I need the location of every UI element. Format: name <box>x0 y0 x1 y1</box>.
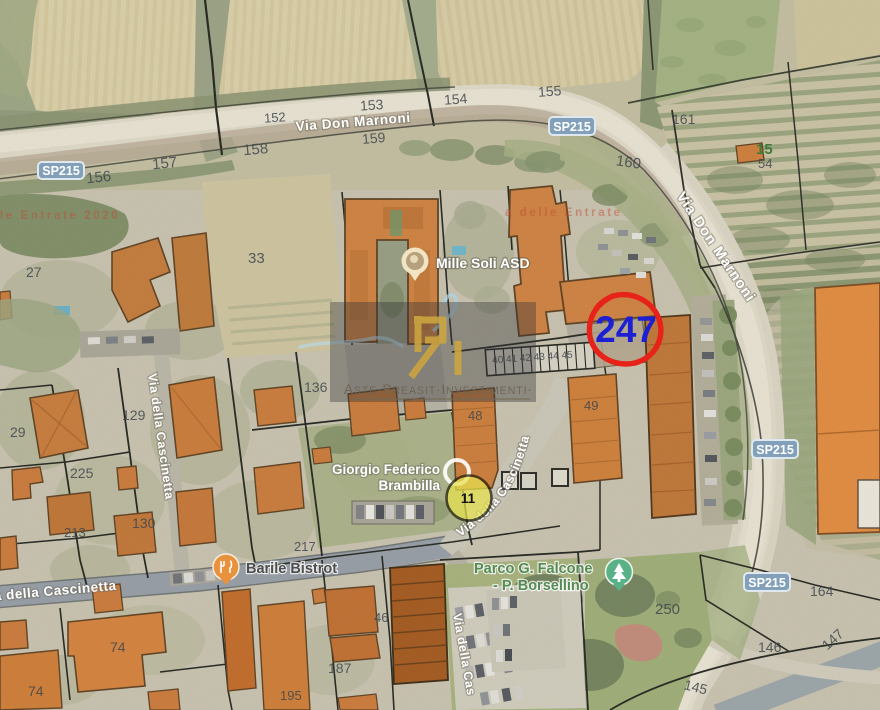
svg-text:146: 146 <box>758 639 782 655</box>
svg-text:136: 136 <box>304 379 328 395</box>
svg-text:130: 130 <box>132 515 156 531</box>
svg-text:157: 157 <box>151 154 178 174</box>
svg-text:158: 158 <box>242 140 268 159</box>
svg-text:48: 48 <box>468 408 482 423</box>
svg-text:Giorgio Federico: Giorgio Federico <box>332 462 440 477</box>
svg-text:29: 29 <box>10 424 26 440</box>
svg-text:Barile Bistrot: Barile Bistrot <box>246 561 337 577</box>
svg-text:46: 46 <box>374 610 388 625</box>
svg-text:SP215: SP215 <box>42 164 80 178</box>
svg-text:33: 33 <box>248 250 265 267</box>
svg-text:156: 156 <box>85 168 112 188</box>
svg-text:ASTE·PREASIT·INVESTIMENTI·: ASTE·PREASIT·INVESTIMENTI· <box>344 382 533 397</box>
svg-text:74: 74 <box>110 639 126 655</box>
svg-text:le Entrate 2020: le Entrate 2020 <box>0 210 120 222</box>
svg-text:54: 54 <box>758 156 772 171</box>
svg-text:49: 49 <box>584 398 598 413</box>
svg-text:161: 161 <box>672 111 696 127</box>
svg-text:a delle Entrate: a delle Entrate <box>505 207 623 219</box>
svg-text:154: 154 <box>443 90 468 108</box>
svg-text:SP215: SP215 <box>756 443 794 457</box>
svg-text:SP215: SP215 <box>553 120 591 134</box>
svg-text:74: 74 <box>28 683 44 699</box>
svg-text:27: 27 <box>26 264 42 280</box>
svg-text:187: 187 <box>328 660 352 676</box>
svg-text:195: 195 <box>280 688 302 703</box>
svg-text:213: 213 <box>64 525 86 540</box>
svg-text:159: 159 <box>361 129 386 147</box>
svg-text:153: 153 <box>359 96 384 114</box>
svg-text:152: 152 <box>264 109 287 125</box>
svg-text:160: 160 <box>615 152 642 172</box>
svg-text:155: 155 <box>537 82 562 100</box>
svg-text:129: 129 <box>122 407 146 423</box>
svg-text:SP215: SP215 <box>748 576 786 590</box>
svg-text:225: 225 <box>70 465 94 481</box>
svg-text:250: 250 <box>655 601 680 618</box>
svg-text:217: 217 <box>294 539 316 554</box>
svg-text:Brambilla: Brambilla <box>378 478 440 493</box>
svg-text:11: 11 <box>461 491 476 506</box>
svg-text:Parco G. Falcone: Parco G. Falcone <box>474 561 592 577</box>
svg-text:Mille Soli ASD: Mille Soli ASD <box>436 255 530 271</box>
svg-text:- P. Borsellino: - P. Borsellino <box>493 578 589 594</box>
svg-text:164: 164 <box>810 583 834 599</box>
svg-text:247: 247 <box>595 309 657 350</box>
